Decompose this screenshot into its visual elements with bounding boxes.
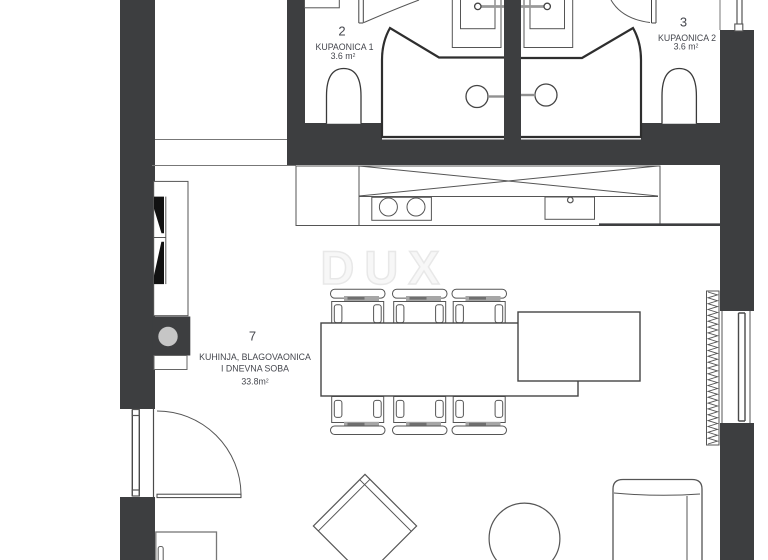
svg-text:33.8m2: 33.8m2 [241,377,268,387]
svg-text:3: 3 [680,15,687,30]
svg-text:KUHINJA, BLAGOVAONICA: KUHINJA, BLAGOVAONICA [199,352,311,362]
svg-text:7: 7 [249,328,256,343]
svg-text:2: 2 [338,23,345,38]
svg-text:3.6 m2: 3.6 m2 [331,51,356,61]
svg-text:DUX: DUX [320,241,449,294]
svg-text:I DNEVNA SOBA: I DNEVNA SOBA [221,364,289,374]
svg-text:3.6 m2: 3.6 m2 [674,42,699,52]
